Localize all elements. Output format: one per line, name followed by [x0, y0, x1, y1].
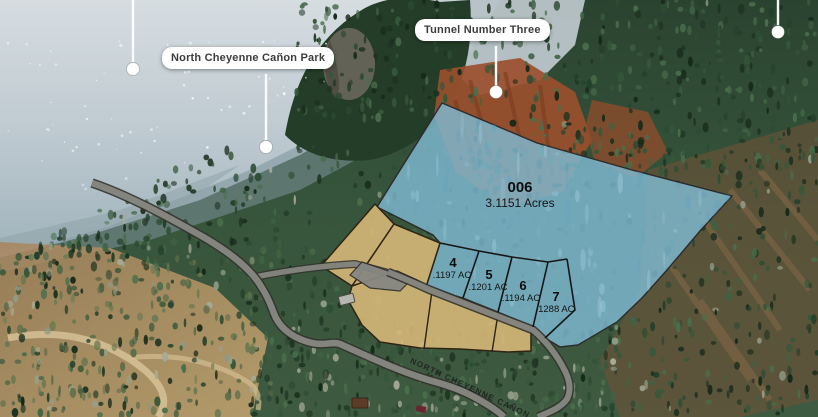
park-callout-label: North Cheyenne Cañon Park [171, 52, 325, 64]
lot-006-number: 006 [507, 179, 532, 196]
shed-roof [352, 398, 368, 408]
tunnel-marker-dot[interactable] [490, 86, 503, 99]
park-marker-dot[interactable] [260, 141, 273, 154]
offscreen-marker-right[interactable] [772, 26, 785, 39]
lot-006-acreage: 3.1151 Acres [485, 196, 554, 210]
lot-7-acreage: .1288 AC [535, 304, 574, 315]
park-callout-pill[interactable]: North Cheyenne Cañon Park [162, 47, 334, 69]
lot-7-number: 7 [552, 289, 559, 304]
lot-4-acreage: .1197 AC [433, 270, 472, 281]
lot-5-number: 5 [485, 267, 492, 282]
lot-6-acreage: .1194 AC [502, 293, 541, 304]
tunnel-callout-pill[interactable]: Tunnel Number Three [415, 19, 550, 41]
tunnel-callout-label: Tunnel Number Three [424, 24, 541, 36]
lot-5-acreage: .1201 AC [468, 282, 507, 293]
offscreen-marker-left[interactable] [127, 63, 140, 76]
lot-4-number: 4 [449, 255, 457, 270]
aerial-lot-map: NORTH CHEYENNE CAÑON 006 3.1151 Acres 4 … [0, 0, 818, 417]
lot-6-number: 6 [519, 278, 526, 293]
